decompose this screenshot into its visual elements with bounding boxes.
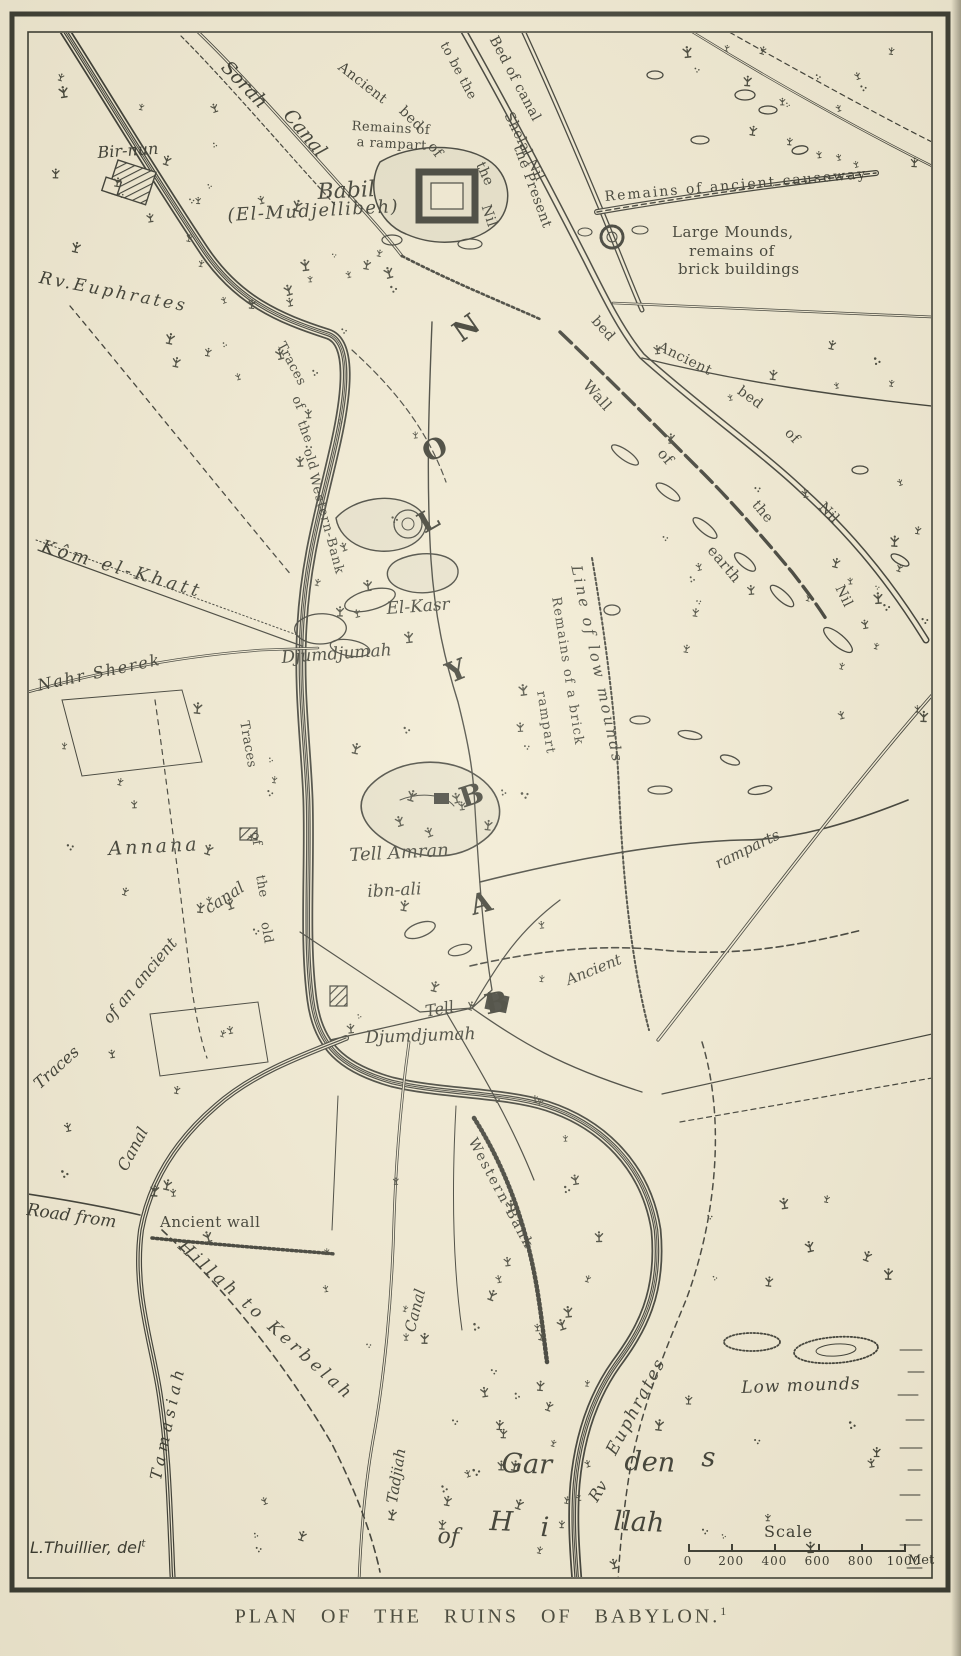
caption-footnote-mark: 1 <box>720 1604 726 1618</box>
scale-tick <box>731 1544 733 1550</box>
scale-tick <box>688 1544 690 1552</box>
page-title: PLAN OF THE RUINS OF BABYLON.1 <box>0 1604 961 1629</box>
cartographer-credit: L.Thuillier, delt <box>30 1538 145 1557</box>
map-plate: SorahCanalAncientbedoftheNilBed of canal… <box>0 0 961 1656</box>
scale-tick <box>774 1544 776 1550</box>
scale-tick <box>861 1544 863 1550</box>
credit-text: L.Thuillier, del <box>30 1538 141 1557</box>
credit-superscript: t <box>141 1539 145 1550</box>
scale-bar: Scale Met 02004006008001000 <box>686 1520 946 1570</box>
scale-tick-label: 800 <box>848 1554 874 1568</box>
caption-text: PLAN OF THE RUINS OF BABYLON. <box>235 1606 721 1628</box>
scale-tick <box>904 1544 906 1552</box>
scale-bar-line <box>688 1550 904 1552</box>
scale-label: Scale <box>764 1522 813 1541</box>
scale-tick-label: 1000 <box>887 1554 922 1568</box>
scale-tick-label: 200 <box>718 1554 744 1568</box>
scale-tick-label: 600 <box>805 1554 831 1568</box>
scale-tick-label: 0 <box>684 1554 693 1568</box>
scale-tick <box>818 1544 820 1550</box>
map-artwork <box>0 0 961 1656</box>
scale-tick-label: 400 <box>761 1554 787 1568</box>
